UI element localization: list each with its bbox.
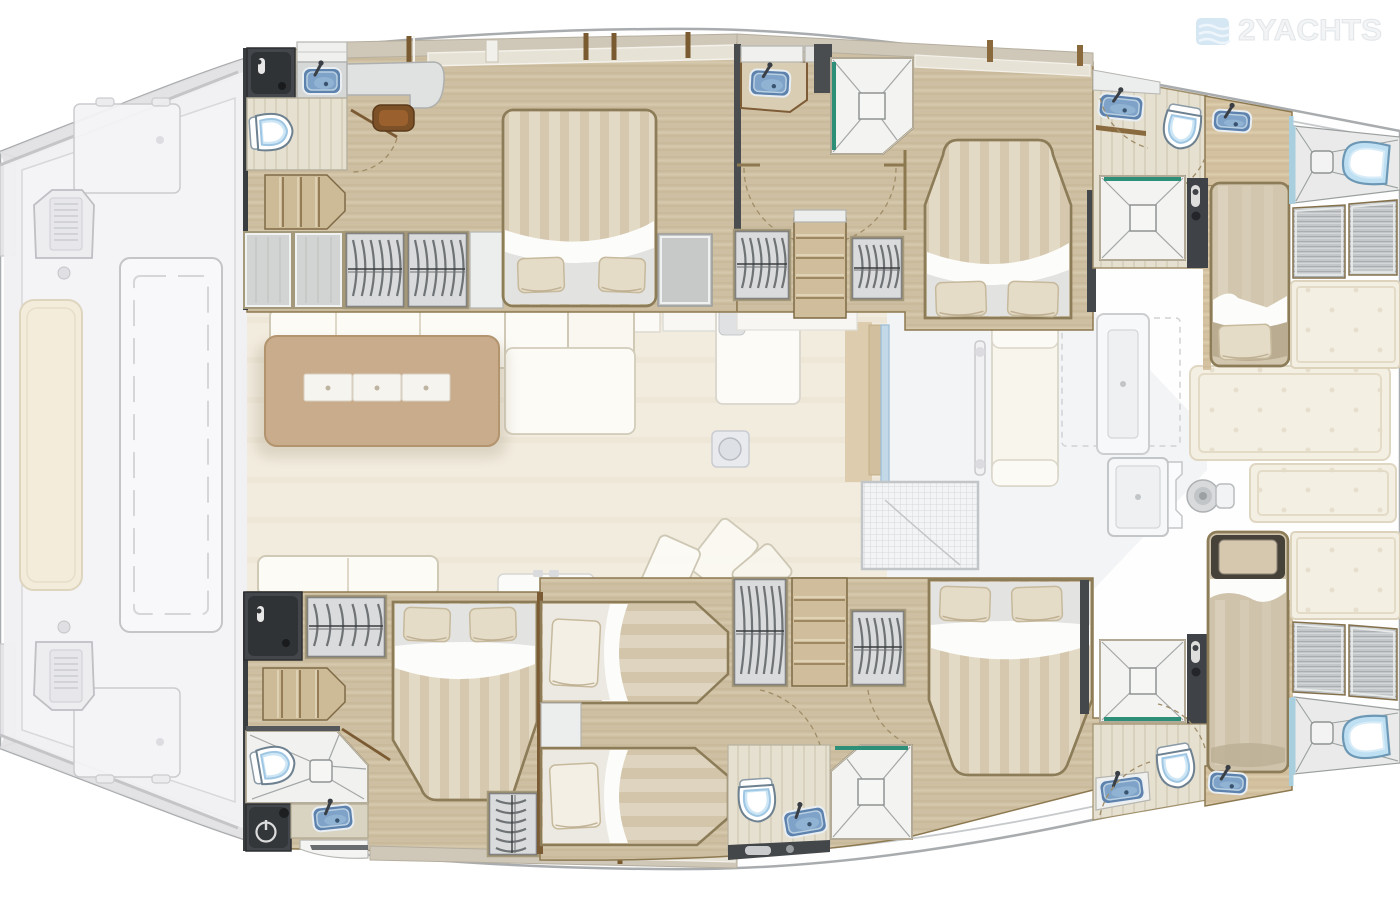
svg-text:2YACHTS: 2YACHTS bbox=[1238, 14, 1382, 47]
